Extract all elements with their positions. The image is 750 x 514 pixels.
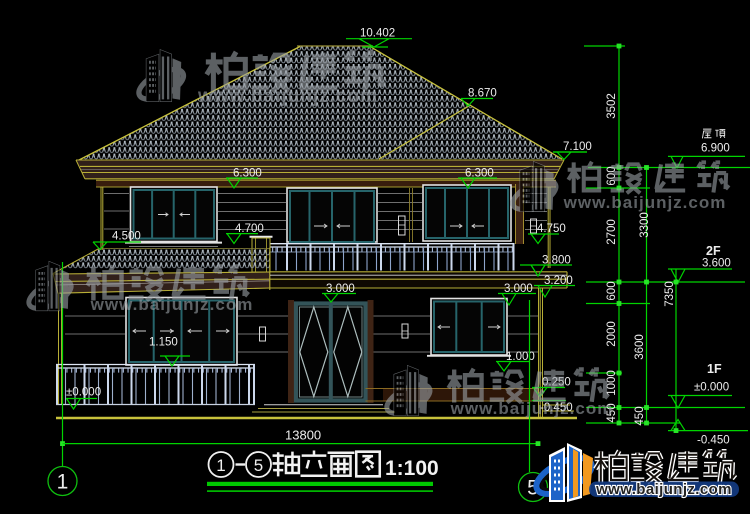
svg-text:1F: 1F	[707, 362, 722, 376]
svg-text:600: 600	[606, 166, 618, 185]
svg-text:www.baijunjz.com: www.baijunjz.com	[595, 481, 732, 498]
svg-text:1:100: 1:100	[385, 457, 439, 480]
svg-text:±0.000: ±0.000	[694, 382, 729, 394]
svg-text:±0.000: ±0.000	[66, 387, 101, 399]
svg-text:www.baijunjz.com: www.baijunjz.com	[90, 295, 254, 314]
svg-text:1000: 1000	[606, 370, 618, 396]
svg-text:1: 1	[57, 471, 69, 494]
svg-text:2000: 2000	[606, 321, 618, 347]
svg-text:4.500: 4.500	[112, 231, 141, 243]
svg-text:6.300: 6.300	[233, 168, 262, 180]
svg-text:-0.450: -0.450	[697, 435, 730, 447]
svg-text:3.800: 3.800	[542, 255, 571, 267]
svg-text:3.000: 3.000	[504, 283, 533, 295]
svg-text:1: 1	[216, 456, 225, 475]
svg-text:2F: 2F	[706, 244, 721, 258]
svg-text:7350: 7350	[664, 281, 676, 307]
svg-text:3.600: 3.600	[702, 258, 731, 270]
svg-text:600: 600	[606, 281, 618, 300]
svg-text:13800: 13800	[285, 428, 321, 443]
svg-text:8.670: 8.670	[468, 88, 497, 100]
svg-text:3300: 3300	[639, 212, 651, 238]
svg-text:3.200: 3.200	[544, 275, 573, 287]
svg-text:4.750: 4.750	[537, 223, 566, 235]
svg-text:1.150: 1.150	[149, 337, 178, 349]
svg-text:4.700: 4.700	[235, 223, 264, 235]
svg-text:7.100: 7.100	[563, 141, 592, 153]
svg-text:6.300: 6.300	[465, 168, 494, 180]
svg-text:3600: 3600	[634, 334, 646, 360]
svg-text:www.baijunjz.com: www.baijunjz.com	[563, 193, 727, 212]
svg-text:5: 5	[254, 456, 263, 475]
svg-text:6.900: 6.900	[701, 143, 730, 155]
svg-text:www.baijunjz.com: www.baijunjz.com	[197, 86, 378, 107]
svg-text:3502: 3502	[606, 93, 618, 119]
svg-text:3.000: 3.000	[326, 283, 355, 295]
svg-text:1.000: 1.000	[506, 351, 535, 363]
svg-text:10.402: 10.402	[360, 28, 395, 40]
svg-text:www.baijunjz.com: www.baijunjz.com	[450, 399, 614, 418]
svg-text:450: 450	[634, 406, 646, 425]
svg-text:2700: 2700	[606, 219, 618, 245]
